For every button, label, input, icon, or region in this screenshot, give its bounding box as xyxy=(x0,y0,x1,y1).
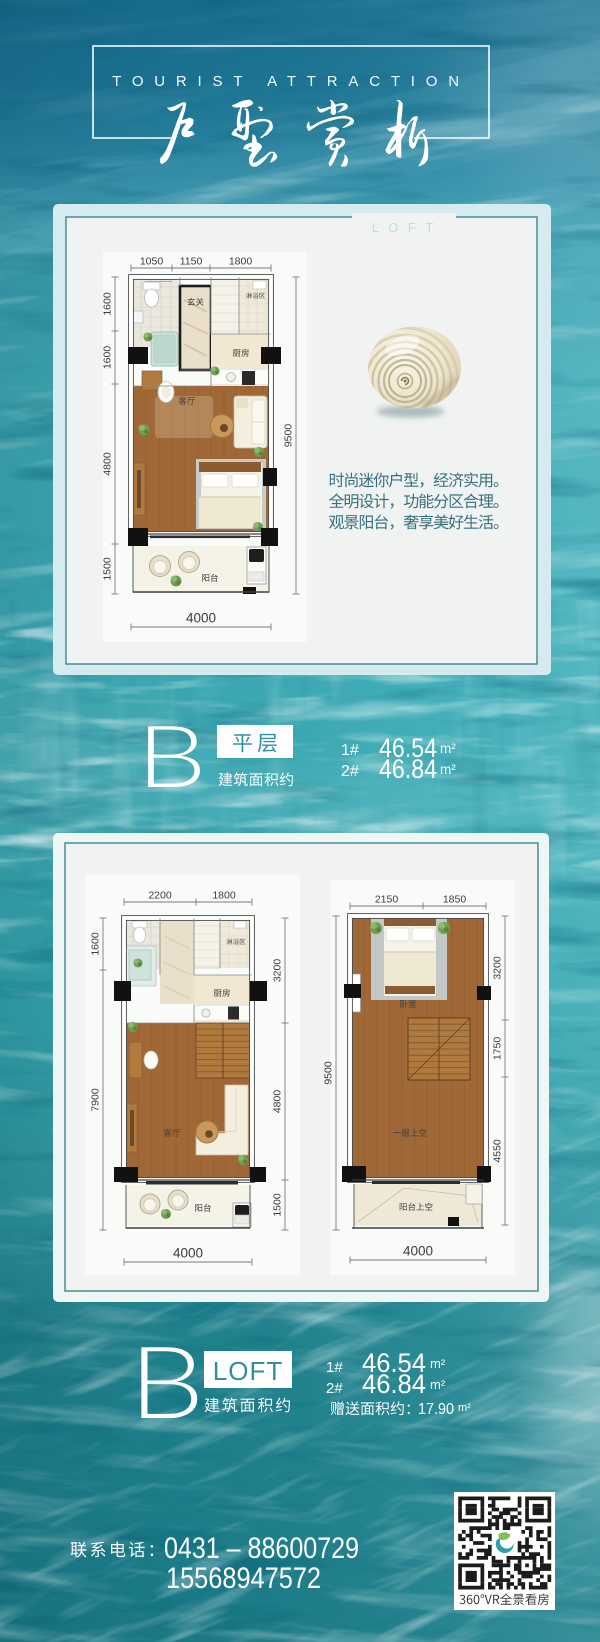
svg-text:1#: 1# xyxy=(326,1359,343,1376)
svg-text:4800: 4800 xyxy=(272,1090,284,1114)
svg-text:1500: 1500 xyxy=(272,1193,284,1217)
svg-text:m²: m² xyxy=(440,762,456,777)
svg-text:m²: m² xyxy=(440,741,456,756)
svg-text:2#: 2# xyxy=(341,763,359,780)
svg-text:1750: 1750 xyxy=(492,1037,504,1061)
svg-text:4000: 4000 xyxy=(186,611,216,626)
svg-text:1050: 1050 xyxy=(140,256,164,268)
svg-text:1150: 1150 xyxy=(180,256,203,268)
svg-text:TOURIST ATTRACTION: TOURIST ATTRACTION xyxy=(112,73,470,90)
svg-text:L O F T: L O F T xyxy=(372,220,436,235)
svg-text:1850: 1850 xyxy=(443,894,467,906)
svg-text:1500: 1500 xyxy=(102,557,114,581)
svg-text:15568947572: 15568947572 xyxy=(166,1562,321,1595)
svg-text:m²: m² xyxy=(458,1402,471,1414)
svg-text:1600: 1600 xyxy=(90,932,102,956)
svg-text:1#: 1# xyxy=(341,742,359,759)
svg-text:9500: 9500 xyxy=(283,424,295,448)
svg-text:2150: 2150 xyxy=(375,894,399,906)
svg-text:m²: m² xyxy=(430,1377,446,1392)
svg-text:0431 – 88600729: 0431 – 88600729 xyxy=(164,1532,359,1565)
svg-text:9500: 9500 xyxy=(323,1061,335,1085)
svg-text:1600: 1600 xyxy=(102,346,114,370)
svg-text:2#: 2# xyxy=(326,1380,343,1397)
svg-text:3200: 3200 xyxy=(492,956,504,980)
svg-text:4000: 4000 xyxy=(403,1244,433,1259)
svg-text:3200: 3200 xyxy=(272,959,284,983)
svg-text:46.84: 46.84 xyxy=(379,754,437,784)
svg-text:4800: 4800 xyxy=(102,452,114,476)
svg-text:LOFT: LOFT xyxy=(213,1356,283,1386)
svg-text:m²: m² xyxy=(430,1356,446,1371)
svg-text:1600: 1600 xyxy=(102,292,114,316)
svg-text:1800: 1800 xyxy=(212,890,236,902)
svg-text:2200: 2200 xyxy=(148,890,172,902)
svg-text:4550: 4550 xyxy=(492,1139,504,1163)
svg-text:7900: 7900 xyxy=(90,1088,102,1112)
svg-text:4000: 4000 xyxy=(173,1246,203,1261)
svg-text:46.84: 46.84 xyxy=(362,1369,426,1399)
svg-text:1800: 1800 xyxy=(229,256,253,268)
svg-text:17.90: 17.90 xyxy=(418,1401,454,1418)
